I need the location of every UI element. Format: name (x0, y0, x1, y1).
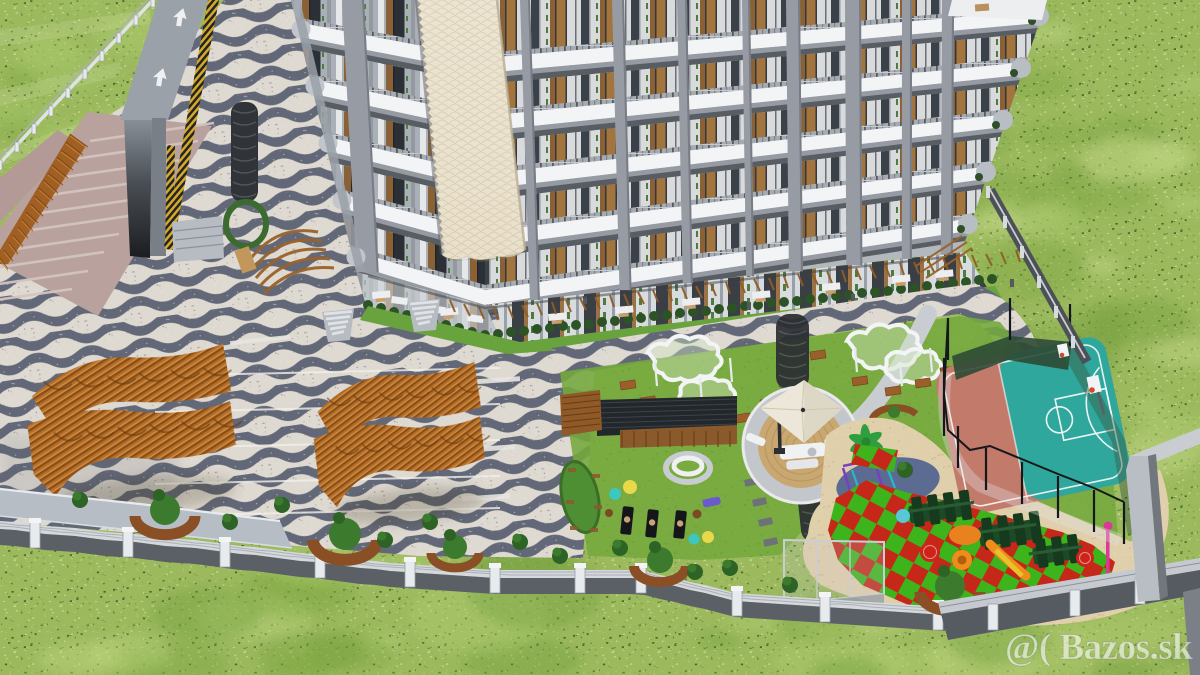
svg-text:@( Bazos.sk: @( Bazos.sk (1005, 627, 1193, 668)
